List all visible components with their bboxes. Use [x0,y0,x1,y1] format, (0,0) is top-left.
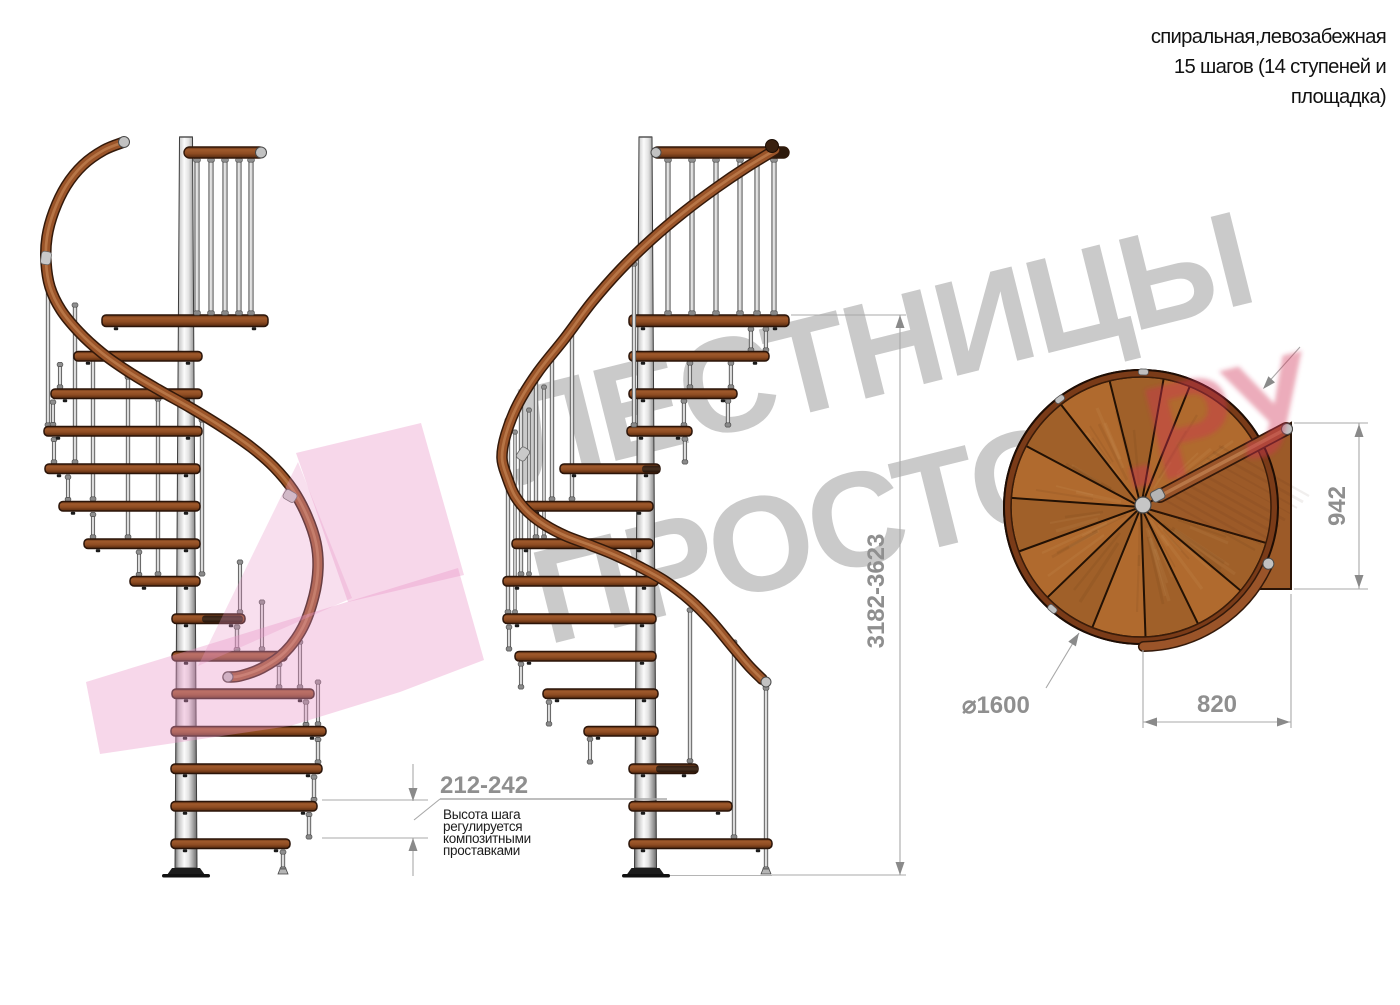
svg-text:проставками: проставками [443,843,520,858]
svg-text:820: 820 [1197,691,1237,718]
svg-text:212-242: 212-242 [440,772,528,799]
svg-text:942: 942 [1324,486,1351,526]
svg-text:15 шагов (14 ступеней и: 15 шагов (14 ступеней и [1174,56,1386,78]
svg-text:спиральная,левозабежная: спиральная,левозабежная [1151,26,1386,48]
svg-text:площадка): площадка) [1291,86,1386,108]
svg-text:3182-3623: 3182-3623 [863,534,890,649]
svg-text:⌀1600: ⌀1600 [962,692,1030,719]
